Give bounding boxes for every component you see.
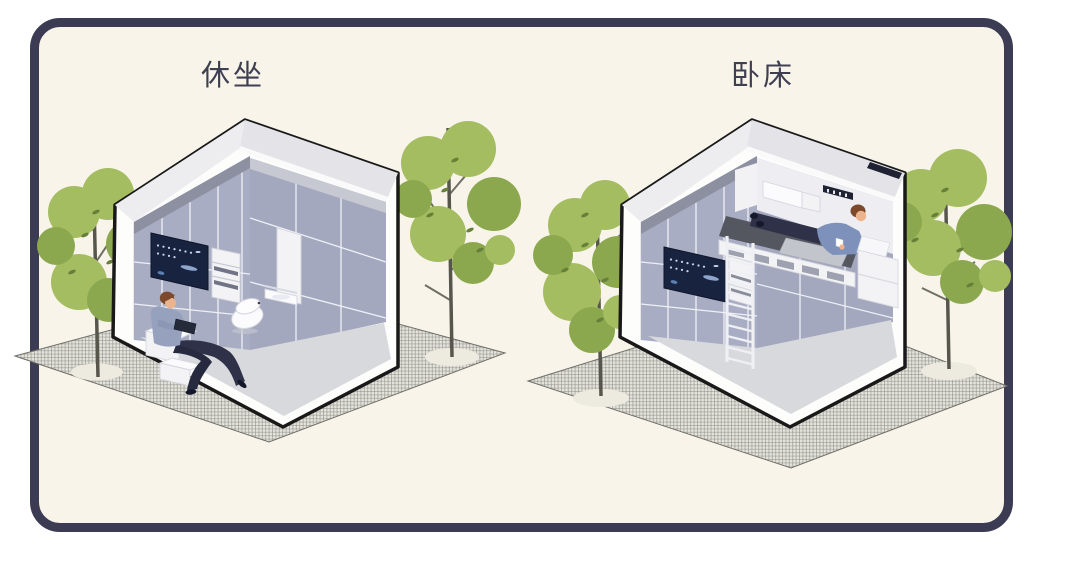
illustration-canvas: 休坐 卧床 [0,0,1080,563]
bed-side-unit [858,250,898,308]
isometric-scenes [0,0,1080,563]
shelf-niche [212,248,240,303]
scene-sitting [15,120,521,442]
label-sitting-mode: 休坐 [163,52,303,94]
tree [394,121,521,357]
label-bed-mode: 卧床 [693,52,833,94]
scene-bed [528,120,1012,468]
